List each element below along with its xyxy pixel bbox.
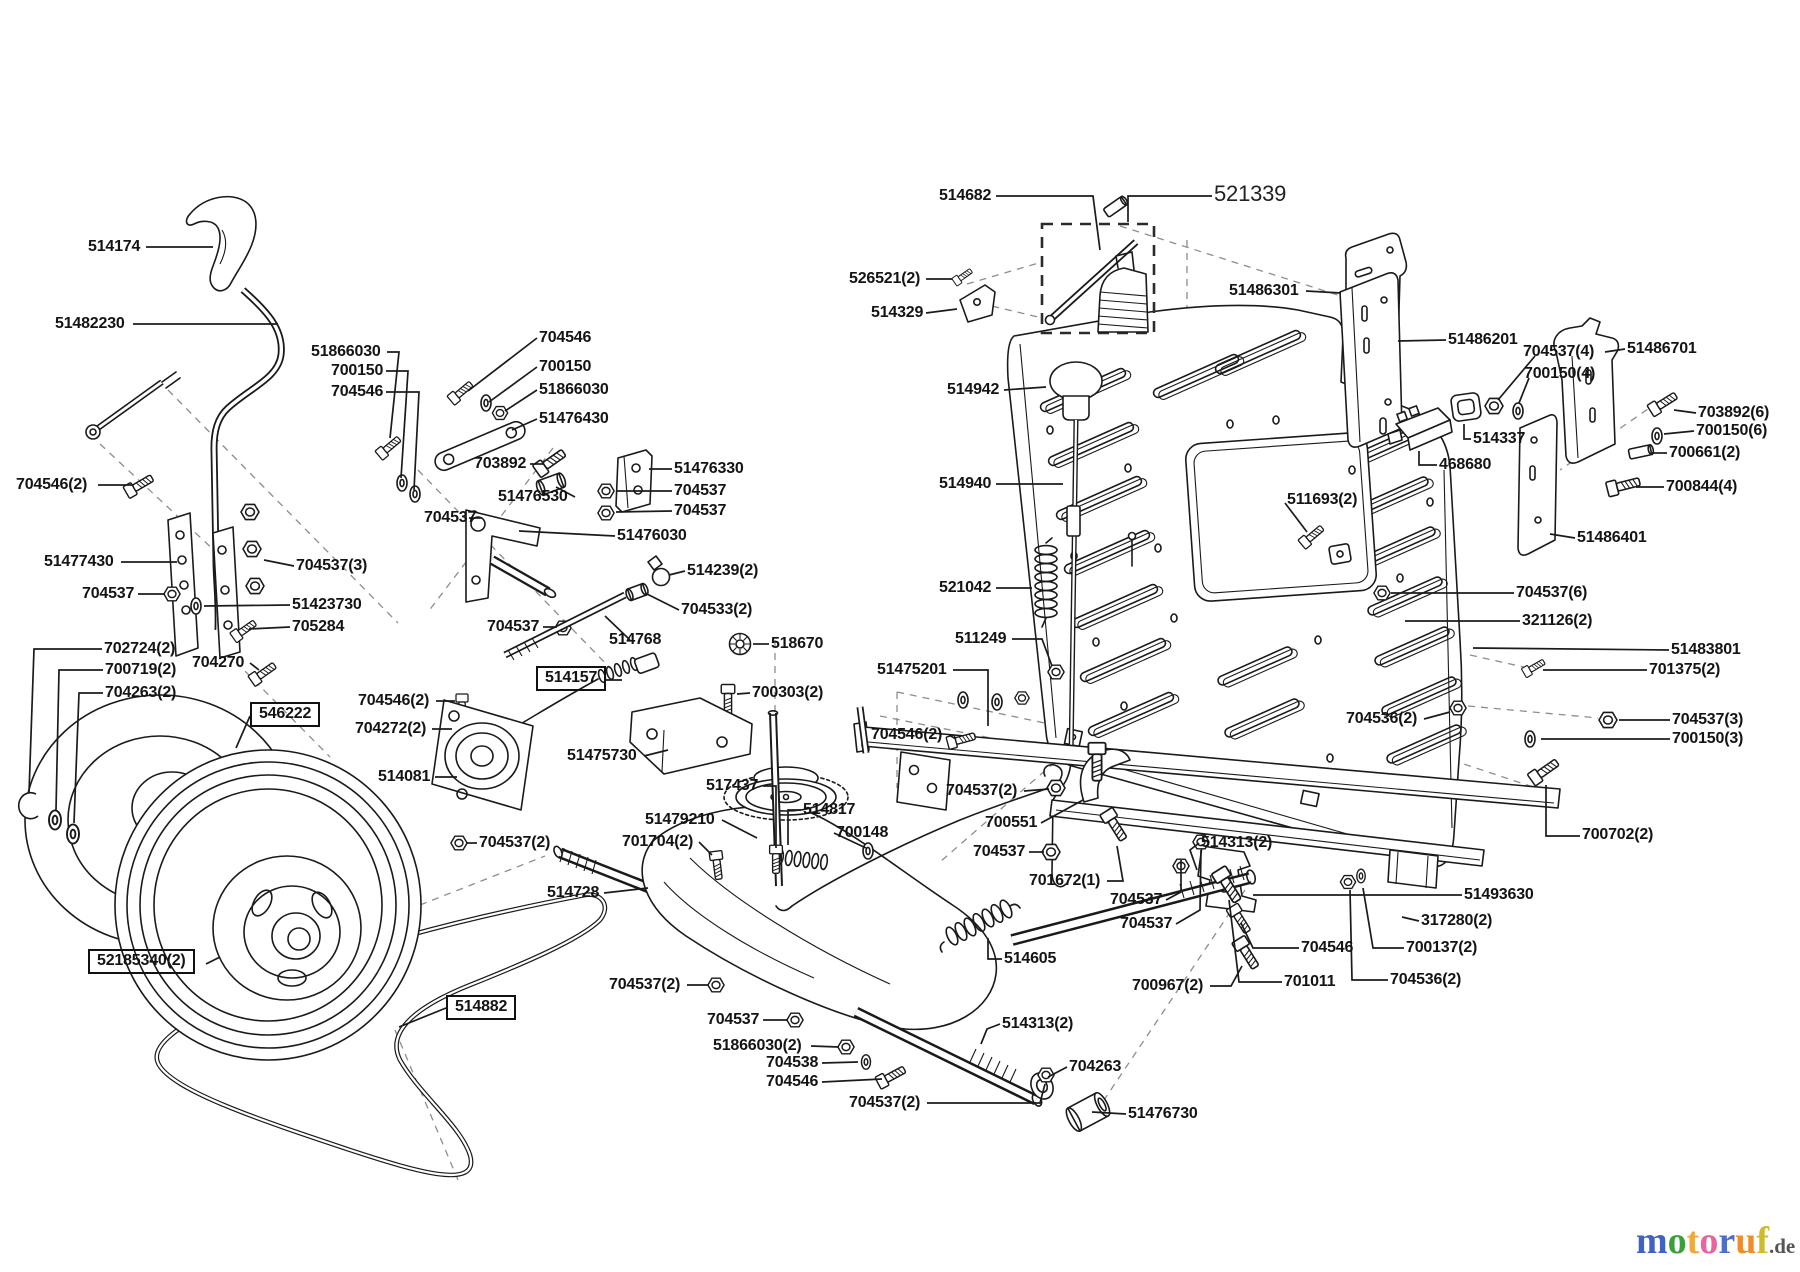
part-label: 51866030 [311,344,381,361]
part-label: 317280(2) [1421,913,1492,930]
part-label: 521042 [939,580,991,597]
star-washer [730,634,751,655]
part-label: 704263 [1069,1059,1121,1076]
part-label: 517437 [706,778,758,795]
part-label: 514882 [446,995,516,1020]
part-label: 700150 [331,363,383,380]
part-label: 700551 [985,815,1037,832]
part-label: 526521(2) [849,271,920,288]
part-label: 51486301 [1229,283,1299,300]
part-label: 51476430 [539,411,609,428]
part-label: 704270 [192,655,244,672]
part-label: 700150(6) [1696,423,1767,440]
part-label: 51483801 [1671,642,1741,659]
part-label: 702724(2) [104,641,175,658]
part-label: 704537(3) [1672,712,1743,729]
logo-suffix: .de [1769,1234,1795,1258]
part-label: 700702(2) [1582,827,1653,844]
part-label: 703892 [474,456,526,473]
part-label: 700150(3) [1672,731,1743,748]
part-label: 700137(2) [1406,940,1477,957]
part-label: 704546 [1301,940,1353,957]
part-label: 521339 [1214,182,1286,205]
part-label: 704537 [424,510,476,527]
part-label: 704272(2) [355,721,426,738]
part-label: 51475201 [877,662,947,679]
part-label: 514174 [88,239,140,256]
shift-lever-kit [952,195,1154,333]
part-label: 704546 [766,1074,818,1091]
part-label: 704537(2) [849,1095,920,1112]
part-label: 51482230 [55,316,125,333]
part-label: 51479210 [645,812,715,829]
part-label: 704537 [707,1012,759,1029]
part-label: 51476730 [1128,1106,1198,1123]
part-label: 514768 [609,632,661,649]
part-label: 701672(1) [1029,873,1100,890]
part-label: 704537 [674,503,726,520]
part-label: 700303(2) [752,685,823,702]
part-label: 51477430 [44,554,114,571]
part-label: 704546 [331,384,383,401]
part-label: 700844(4) [1666,479,1737,496]
part-label: 704536(2) [1346,711,1417,728]
part-label: 701011 [1284,974,1335,991]
part-label: 514605 [1004,951,1056,968]
part-label: 703892(6) [1698,405,1769,422]
part-label: 704546(2) [871,727,942,744]
part-label: 700661(2) [1669,445,1740,462]
part-label: 52185340(2) [88,949,195,974]
part-label: 51486201 [1448,332,1518,349]
part-label: 704537(2) [479,835,550,852]
part-label: 700719(2) [105,662,176,679]
part-label: 704537(6) [1516,585,1587,602]
part-label: 321126(2) [1522,613,1592,630]
part-label: 701375(2) [1649,662,1720,679]
part-label: 514313(2) [1201,835,1272,852]
part-label: 514313(2) [1002,1016,1073,1033]
part-label: 700150(4) [1524,366,1595,383]
part-label: 704536(2) [1390,972,1461,989]
part-label: 511693(2) [1287,492,1357,509]
part-label: 704537 [1110,892,1162,909]
part-label: 514239(2) [687,563,758,580]
part-label: 700148 [836,825,888,842]
part-label: 704263(2) [105,685,176,702]
parts-diagram-page: 5141745148223051866030700150704546704546… [0,0,1800,1272]
part-label: 514728 [547,885,599,902]
part-label: 704546(2) [16,477,87,494]
part-label: 704537(2) [946,783,1017,800]
part-label: 51866030(2) [713,1038,802,1055]
part-label: 511249 [955,631,1006,648]
part-label: 514081 [378,769,430,786]
part-label: 514817 [803,802,855,819]
motoruf-logo: motoruf.de [1636,1222,1795,1260]
part-label: 704533(2) [681,602,752,619]
part-label: 704537 [973,844,1025,861]
part-label: 704546(2) [358,693,429,710]
part-label: 51866030 [539,382,609,399]
part-label: 704537(4) [1523,344,1594,361]
part-label: 51486401 [1577,530,1647,547]
part-label: 700150 [539,359,591,376]
part-label: 51486701 [1627,341,1697,358]
part-label: 514940 [939,476,991,493]
part-label: 700967(2) [1132,978,1203,995]
part-label: 701704(2) [622,834,693,851]
part-label: 704537 [82,586,134,603]
part-label: 514329 [871,305,923,322]
part-label: 514682 [939,188,991,205]
part-label: 51423730 [292,597,362,614]
part-label: 704537(3) [296,558,367,575]
part-label: 705284 [292,619,344,636]
part-label: 51476530 [498,489,568,506]
part-label: 51476030 [617,528,687,545]
part-label: 514157 [536,666,606,691]
logo-letters: motoruf [1636,1220,1769,1262]
part-label: 468680 [1439,457,1491,474]
part-label: 704537 [1120,916,1172,933]
part-label: 704546 [539,330,591,347]
part-label: 704537(2) [609,977,680,994]
part-label: 546222 [250,702,320,727]
part-label: 51475730 [567,748,637,765]
part-label: 514337 [1473,431,1525,448]
part-label: 704537 [487,619,539,636]
part-label: 704538 [766,1055,818,1072]
panel-window [1185,432,1378,602]
front-wheel [115,750,421,1060]
part-label: 51476330 [674,461,744,478]
part-label: 51493630 [1464,887,1534,904]
part-label: 704537 [674,483,726,500]
diagram-artwork [0,0,1800,1272]
part-label: 518670 [771,636,823,653]
part-label: 514942 [947,382,999,399]
